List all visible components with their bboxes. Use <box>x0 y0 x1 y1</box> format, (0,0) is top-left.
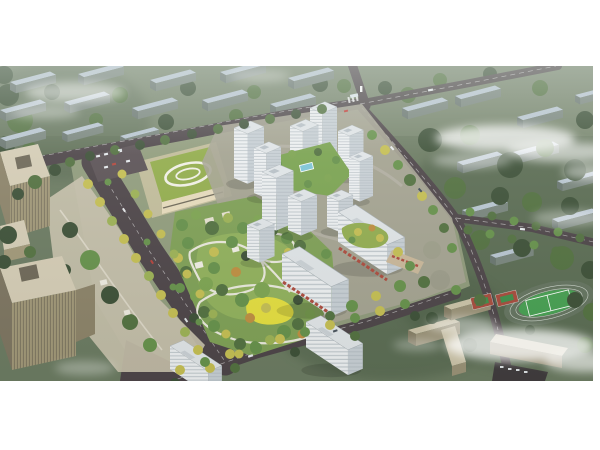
rendering-canvas <box>0 0 600 450</box>
cloud <box>55 361 115 375</box>
cloud <box>25 82 125 102</box>
cloud <box>11 105 79 119</box>
cloud <box>230 70 290 82</box>
clouds-and-haze <box>0 66 600 381</box>
aerial-rendering <box>0 0 600 450</box>
cloud <box>393 339 443 351</box>
cloud <box>432 152 512 168</box>
cloud <box>427 317 497 333</box>
